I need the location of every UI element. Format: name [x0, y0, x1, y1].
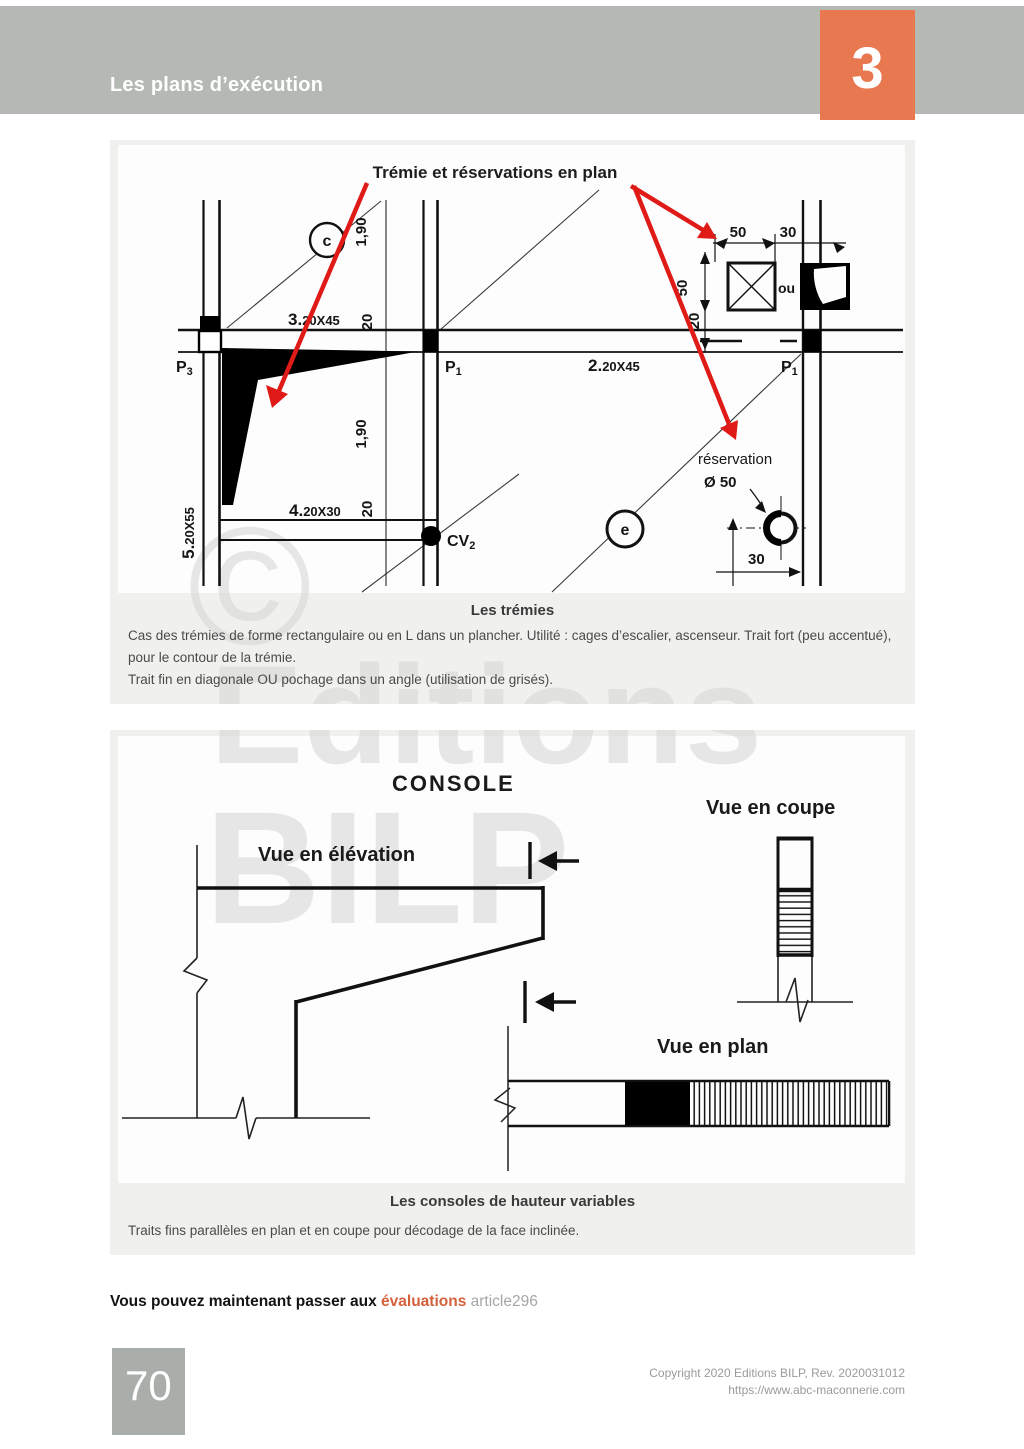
section-view	[737, 837, 853, 1022]
page-number-box: 70	[112, 1348, 185, 1435]
cta-article-ref: article296	[466, 1293, 538, 1310]
red-arrow-pointers	[278, 183, 729, 424]
svg-text:e: e	[621, 522, 630, 539]
label-vue-en-elevation: Vue en élévation	[258, 844, 415, 866]
tremie-plan-drawing: c e 3.20X45 2.20X45 4.20X30 5.20X55 20 2…	[118, 145, 905, 593]
copyright-notice: Copyright 2020 Editions BILP, Rev. 20200…	[649, 1365, 905, 1399]
tremie-symbol-detail: 50 30 50 20 ou	[674, 224, 850, 352]
figure1-title: Trémie et réservations en plan	[373, 163, 618, 182]
figure-block-consoles: Editions BILP CONSOLE Vue en coupe Vue e…	[110, 730, 915, 1255]
label-vue-en-coupe: Vue en coupe	[706, 797, 835, 819]
cta-prefix: Vous pouvez maintenant passer aux	[110, 1293, 381, 1310]
chapter-number: 3	[851, 40, 883, 98]
elevation-view	[122, 842, 579, 1139]
figure2-caption-body: Traits fins parallèles en plan et en cou…	[128, 1220, 898, 1242]
caption-line: Trait fin en diagonale OU pochage dans u…	[128, 669, 898, 691]
figure-block-tremies: © Editions	[110, 140, 915, 704]
evaluations-cta: Vous pouvez maintenant passer aux évalua…	[110, 1293, 538, 1311]
main-beam	[178, 316, 903, 352]
page-title: Les plans d’exécution	[110, 74, 323, 97]
dim-30-top: 30	[780, 224, 797, 241]
dim-20-mid: 20	[359, 501, 376, 518]
cv2-beam	[220, 520, 441, 546]
dim-50-top: 50	[730, 224, 747, 241]
label-ou: ou	[778, 280, 795, 296]
label-diameter-50: Ø 50	[704, 474, 737, 491]
chapter-number-badge: 3	[820, 10, 915, 120]
beam-label-2-20x45: 2.20X45	[588, 356, 640, 375]
tremie-pochage-shading	[222, 348, 418, 505]
copyright-line: Copyright 2020 Editions BILP, Rev. 20200…	[649, 1365, 905, 1382]
label-cv2: CV2	[447, 533, 475, 552]
label-vue-en-plan: Vue en plan	[657, 1036, 769, 1058]
caption-line: Cas des trémies de forme rectangulaire o…	[128, 625, 898, 647]
reservation-detail: réservation Ø 50 30	[698, 451, 806, 586]
column-label-p1-left: P1	[445, 359, 462, 378]
caption-line: Traits fins parallèles en plan et en cou…	[128, 1220, 898, 1242]
beam-label-4-20x30: 4.20X30	[289, 501, 341, 520]
label-reservation: réservation	[698, 451, 772, 468]
svg-text:c: c	[323, 233, 332, 250]
caption-line: pour le contour de la trémie.	[128, 647, 898, 669]
column-label-p3: P3	[176, 359, 193, 378]
evaluations-link[interactable]: évaluations	[381, 1293, 466, 1310]
dim-30-bottom: 30	[748, 551, 765, 568]
page-number: 70	[125, 1362, 172, 1410]
axis-marker-e: e	[607, 511, 643, 547]
beam-label-5-20x55: 5.20X55	[179, 507, 198, 559]
figure1-caption-title: Les trémies	[110, 602, 915, 619]
dim-190-bottom: 1,90	[353, 419, 370, 448]
console-drawing: CONSOLE Vue en coupe Vue en élévation Vu…	[118, 736, 905, 1183]
figure1-caption-body: Cas des trémies de forme rectangulaire o…	[128, 625, 898, 691]
figure2-title: CONSOLE	[392, 771, 515, 796]
copyright-url[interactable]: https://www.abc-maconnerie.com	[649, 1382, 905, 1399]
dim-190-top: 1,90	[353, 217, 370, 246]
column-label-p1-right: P1	[781, 359, 798, 378]
header-bar: Les plans d’exécution 3	[0, 6, 1024, 114]
figure2-caption-title: Les consoles de hauteur variables	[110, 1193, 915, 1210]
dim-20-top: 20	[359, 314, 376, 331]
